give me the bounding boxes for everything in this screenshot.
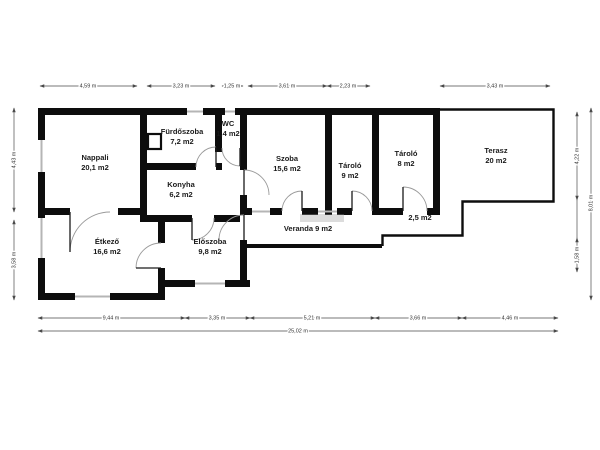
- wall-segment: [302, 208, 318, 215]
- room-label-tarolo-8: Tároló: [395, 149, 418, 158]
- room-area-terasz: 20 m2: [485, 156, 506, 165]
- wall-segment: [38, 108, 45, 140]
- dim-label-total: 25,02 m: [288, 328, 308, 334]
- room-area-wc: 1,4 m2: [216, 129, 239, 138]
- wall-segment: [240, 195, 247, 215]
- wall-segment: [110, 293, 165, 300]
- dim-label-bottom-4: 3,66 m: [410, 315, 427, 321]
- dim-label-bottom-3: 5,21 m: [304, 315, 321, 321]
- wall-segment: [38, 208, 70, 215]
- room-area-tarolo-9: 9 m2: [341, 171, 358, 180]
- room-label-wc: WC: [222, 119, 235, 128]
- room-area-szoba: 15,6 m2: [273, 164, 301, 173]
- dim-label-bottom-5: 4,46 m: [502, 315, 519, 321]
- door-arc: [352, 191, 372, 211]
- wall-segment: [158, 222, 165, 243]
- room-area-furdoszoba: 7,2 m2: [170, 137, 193, 146]
- wall-segment: [140, 163, 196, 170]
- terrace-boundary: [383, 110, 554, 247]
- wall-segment: [325, 108, 332, 215]
- door-arc: [403, 187, 427, 211]
- dim-label-top-6: 3,43 m: [487, 83, 504, 89]
- room-label-nappali: Nappali: [81, 153, 108, 162]
- door-arc: [282, 191, 302, 211]
- wall-segment: [140, 108, 147, 215]
- room-label-terasz: Terasz: [484, 146, 507, 155]
- wall-segment: [247, 208, 252, 215]
- door-arc: [196, 147, 216, 167]
- room-area-tarolo-8: 8 m2: [397, 159, 414, 168]
- wall-segment: [337, 208, 352, 215]
- room-label-tarolo-9: Tároló: [339, 161, 362, 170]
- dim-label-top-4: 3,61 m: [279, 83, 296, 89]
- wall-segment: [38, 108, 187, 115]
- room-label-etkezo: Étkező: [95, 237, 120, 246]
- room-label-konyha: Konyha: [167, 180, 195, 189]
- dim-label-right-1: 4,22 m: [574, 147, 580, 164]
- wall-segment: [372, 108, 379, 215]
- room-label-eloszoba: Előszoba: [194, 237, 228, 246]
- wall-segment: [433, 108, 440, 215]
- dim-label-right-total: 8,01 m: [588, 194, 594, 211]
- dim-label-bottom-1: 9,44 m: [103, 315, 120, 321]
- watermark: [300, 214, 344, 222]
- dim-label-top-3: 1,25 m: [224, 83, 241, 89]
- dim-label-right-2: 1,58 m: [574, 246, 580, 263]
- room-area-etkezo: 16,6 m2: [93, 247, 121, 256]
- boiler-fixture: [148, 134, 161, 149]
- room-label-veranda: Veranda 9 m2: [284, 224, 332, 233]
- wall-segment: [118, 208, 147, 215]
- dim-label-left-2: 3,58 m: [11, 251, 17, 268]
- dim-label-top-2: 3,23 m: [173, 83, 190, 89]
- dim-label-left-1: 4,43 m: [11, 151, 17, 168]
- wall-segment: [235, 108, 440, 115]
- dim-label-bottom-2: 3,35 m: [209, 315, 226, 321]
- room-label-step-area: 2,5 m2: [408, 213, 431, 222]
- door-arc: [244, 170, 269, 195]
- room-area-nappali: 20,1 m2: [81, 163, 109, 172]
- room-area-konyha: 6,2 m2: [169, 190, 192, 199]
- wall-segment: [140, 215, 192, 222]
- wall-segment: [240, 240, 247, 287]
- dim-label-top-1: 4,59 m: [80, 83, 97, 89]
- door-arc: [70, 212, 110, 252]
- room-label-furdoszoba: Fürdőszoba: [161, 127, 204, 136]
- dim-label-top-5: 2,23 m: [340, 83, 357, 89]
- wall-segment: [216, 163, 222, 170]
- wall-segment: [158, 268, 165, 300]
- room-label-szoba: Szoba: [276, 154, 299, 163]
- floor-plan: Nappali 20,1 m2 Fürdőszoba 7,2 m2 WC 1,4…: [0, 0, 600, 450]
- wall-segment: [38, 293, 75, 300]
- door-arc: [136, 243, 161, 268]
- wall-segment: [270, 208, 282, 215]
- door-arc: [222, 148, 240, 166]
- wall-segment: [240, 108, 247, 170]
- room-area-eloszoba: 9,8 m2: [198, 247, 221, 256]
